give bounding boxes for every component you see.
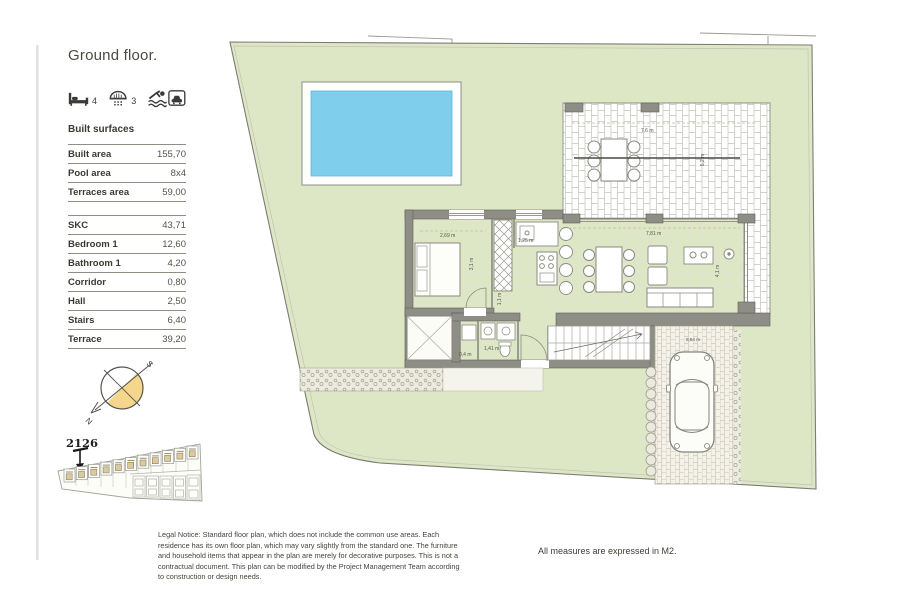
table-row: Hall 2,50 [68, 291, 186, 310]
siteplan-lower-plots [133, 475, 200, 500]
room-label: Bedroom 1 [68, 239, 118, 250]
table-row: Bathroom 1 4,20 [68, 253, 186, 272]
gravel-path [300, 368, 443, 391]
dim-living-h: 4,1 m [715, 265, 721, 278]
room-value: 12,60 [162, 239, 186, 250]
car-mirror [714, 385, 718, 392]
dim-living-w: 7,81 m [646, 231, 661, 237]
dining-table [596, 247, 622, 292]
terrace-pillar [565, 103, 583, 112]
terrace-pillar [641, 103, 659, 112]
table-row: Terraces area 59,00 [68, 182, 186, 201]
features-row: 4 3 [68, 86, 186, 110]
table-row: SKC 43,71 [68, 215, 186, 234]
room-value: 4,20 [168, 258, 187, 269]
utility-cabinet [462, 325, 476, 340]
dim-driveway: 8,54 m [686, 337, 700, 342]
dim-bedroom-h: 3,1 m [469, 258, 475, 271]
driveway-edge-strip [733, 330, 741, 484]
surface-value: 155,70 [157, 149, 186, 160]
dim-corridor-w: 1,1 m [497, 293, 503, 306]
bedroom-door-gap [464, 308, 486, 316]
armchair [648, 267, 667, 285]
room-value: 0,80 [168, 277, 187, 288]
table-row: Stairs 6,40 [68, 310, 186, 329]
pool-area [302, 82, 461, 185]
room-label: Corridor [68, 277, 106, 288]
dim-closet-w: 1,25 m [518, 238, 533, 244]
compass: N S [84, 359, 155, 427]
driveway: 8,54 m [646, 326, 741, 484]
swimming-pool [311, 91, 452, 176]
room-value: 6,40 [168, 315, 187, 326]
surfaces-summary-table: Built area 155,70 Pool area 8x4 Terraces… [68, 144, 186, 202]
scan-fold-line [36, 45, 39, 560]
armchair [648, 246, 667, 264]
surface-label: Built area [68, 149, 111, 160]
room-value: 43,71 [162, 220, 186, 231]
coffee-table [684, 247, 713, 264]
room-label: Stairs [68, 315, 94, 326]
table-row: Corridor 0,80 [68, 272, 186, 291]
north-arrow [91, 402, 101, 413]
info-sidebar: Ground floor. 4 3 [68, 47, 186, 349]
surface-value: 8x4 [171, 168, 186, 179]
garage-icon [168, 88, 186, 108]
bed-icon [68, 89, 89, 108]
table-row: Bedroom 1 12,60 [68, 234, 186, 253]
room-label: SKC [68, 220, 88, 231]
swimmer-icon [147, 88, 168, 109]
dim-bath-w: 1,41 m [484, 346, 499, 352]
page-title: Ground floor. [68, 47, 186, 64]
room-value: 2,50 [168, 296, 187, 307]
table-row: Built area 155,70 [68, 144, 186, 163]
dim-utility-w: 0,4 m [459, 352, 472, 358]
closet [494, 220, 512, 291]
car-mirror [667, 385, 671, 392]
shower-icon [108, 88, 128, 109]
outdoor-table [588, 139, 640, 181]
car [667, 352, 718, 452]
terrace-width-dim: 7,6 m [641, 128, 654, 134]
table-row: Pool area 8x4 [68, 163, 186, 182]
surface-label: Terraces area [68, 187, 129, 198]
legal-notice: Legal Notice: Standard floor plan, which… [158, 530, 460, 583]
entrance-apron [443, 368, 543, 391]
measures-note: All measures are expressed in M2. [538, 546, 677, 556]
room-label: Bathroom 1 [68, 258, 121, 269]
compass-north-label: N [84, 416, 95, 427]
floor-plan-sheet: 7,6 m 5,2 m [0, 0, 900, 600]
plot-number-label: 2126 [66, 436, 98, 450]
rooms-table: SKC 43,71 Bedroom 1 12,60 Bathroom 1 4,2… [68, 215, 186, 349]
stairs [548, 326, 650, 360]
terrace-height-dim: 5,2 m [700, 154, 706, 167]
room-label: Hall [68, 296, 85, 307]
beds-count: 4 [92, 96, 97, 106]
patio [407, 316, 452, 360]
room-label: Terrace [68, 334, 102, 345]
table-row: Terrace 39,20 [68, 329, 186, 348]
surface-label: Pool area [68, 168, 111, 179]
dining-set [584, 247, 635, 293]
dim-bedroom-w: 2,69 m [440, 233, 455, 239]
room-value: 39,20 [162, 334, 186, 345]
surface-value: 59,00 [162, 187, 186, 198]
siteplan-key: 2126 [58, 436, 202, 501]
built-surfaces-heading: Built surfaces [68, 124, 186, 135]
baths-count: 3 [131, 96, 136, 106]
